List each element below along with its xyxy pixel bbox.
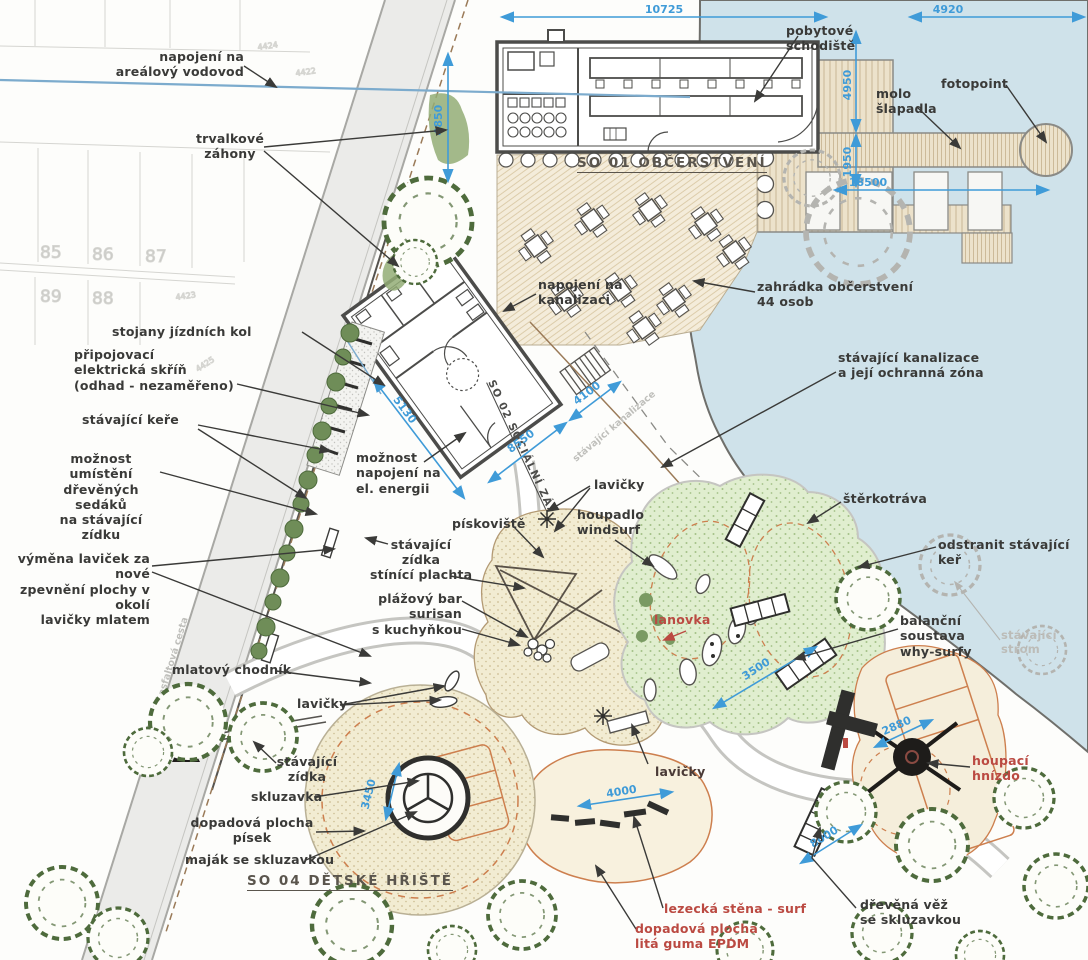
section-label-so01: SO 01 OBČERSTVENÍ	[577, 155, 767, 173]
parcel-code: 4424	[257, 40, 278, 52]
parcel-code: 4423	[175, 290, 196, 302]
label-sewer-connection: napojení na kanalizaci	[538, 277, 648, 308]
parcel-number: 89	[40, 287, 62, 307]
label-bike-racks: stojany jízdních kol	[112, 324, 252, 339]
dim-1950: 1950	[841, 146, 854, 177]
label-remove-shrub: odstranit stávající keř	[938, 537, 1088, 568]
label-climbing-wall: lezecká stěna - surf	[664, 901, 806, 916]
building-so01	[497, 30, 818, 152]
label-bench-replacement: výměna laviček za nové zpevnění plochy v…	[0, 551, 150, 627]
label-lighthouse: maják se skluzavkou	[185, 852, 334, 867]
label-sandpit: pískoviště	[452, 516, 526, 531]
label-epdm-surface: dopadová plocha litá guma EPDM	[635, 921, 800, 952]
parcel-number: 85	[40, 243, 62, 263]
umbrella-icon	[538, 510, 556, 528]
dim-4920: 4920	[933, 3, 964, 16]
label-gravel-grass: štěrkotráva	[843, 491, 927, 506]
label-seating-steps: pobytové schodiště	[786, 23, 886, 54]
label-rocker: houpadlo windsurf	[577, 507, 667, 538]
label-zipline: lanovka	[654, 612, 711, 627]
label-existing-tree: stávající strom	[1001, 628, 1065, 656]
label-water-main: napojení na areálový vodovod	[88, 49, 244, 80]
label-slide: skluzavka	[251, 789, 322, 804]
parcel-number: 87	[145, 247, 167, 267]
label-perennial-beds: trvalkové záhony	[180, 131, 280, 162]
label-beach-bar: plážový bar surisan s kuchyňkou	[340, 591, 462, 637]
fotopoint-platform	[1020, 124, 1072, 176]
label-benches-south: lavičky	[655, 764, 705, 779]
label-existing-wall-center: stávající zídka	[390, 537, 452, 568]
label-sewer-zone: stávající kanalizace a její ochranná zón…	[838, 350, 1008, 381]
parcel-code: 4422	[295, 66, 316, 78]
label-gravel-path: mlatový chodník	[172, 662, 291, 677]
label-existing-wall-southwest: stávající zídka	[276, 754, 338, 785]
seating-steps	[962, 233, 1012, 263]
label-benches-southwest: lavičky	[297, 696, 347, 711]
label-nest-swing: houpací hnízdo	[972, 753, 1052, 784]
label-garden-seating: zahrádka občerstvení 44 osob	[757, 279, 942, 310]
label-wooden-seats: možnost umístění dřevěných sedáků na stá…	[40, 451, 162, 543]
label-wooden-tower: dřevěná věž se skluzavkou	[860, 897, 972, 928]
dim-4950: 4950	[841, 69, 854, 100]
label-sand-surface: dopadová plocha písek	[190, 815, 314, 846]
site-plan: 85 86 87 89 88 4424 4422 4425 4423 stáva…	[0, 0, 1088, 960]
site-plan-drawing: 85 86 87 89 88 4424 4422 4425 4423 stáva…	[0, 0, 1088, 960]
label-power-connection: možnost napojení na el. energii	[356, 450, 446, 496]
label-electric-cabinet: připojovací elektrická skříň (odhad - ne…	[74, 347, 244, 393]
dim-10725: 10725	[645, 3, 683, 16]
label-shade-sail: stínící plachta	[370, 567, 472, 582]
dim-18500: 18500	[849, 176, 888, 189]
parcel-number: 88	[92, 289, 114, 309]
section-label-so04: SO 04 DĚTSKÉ HŘIŠTĚ	[247, 873, 453, 891]
lighthouse-slide	[388, 758, 468, 838]
parcel-number: 86	[92, 245, 114, 265]
label-fotopoint: fotopoint	[941, 76, 1008, 91]
label-benches-center: lavičky	[594, 477, 644, 492]
label-existing-shrubs: stávající keře	[82, 412, 179, 427]
